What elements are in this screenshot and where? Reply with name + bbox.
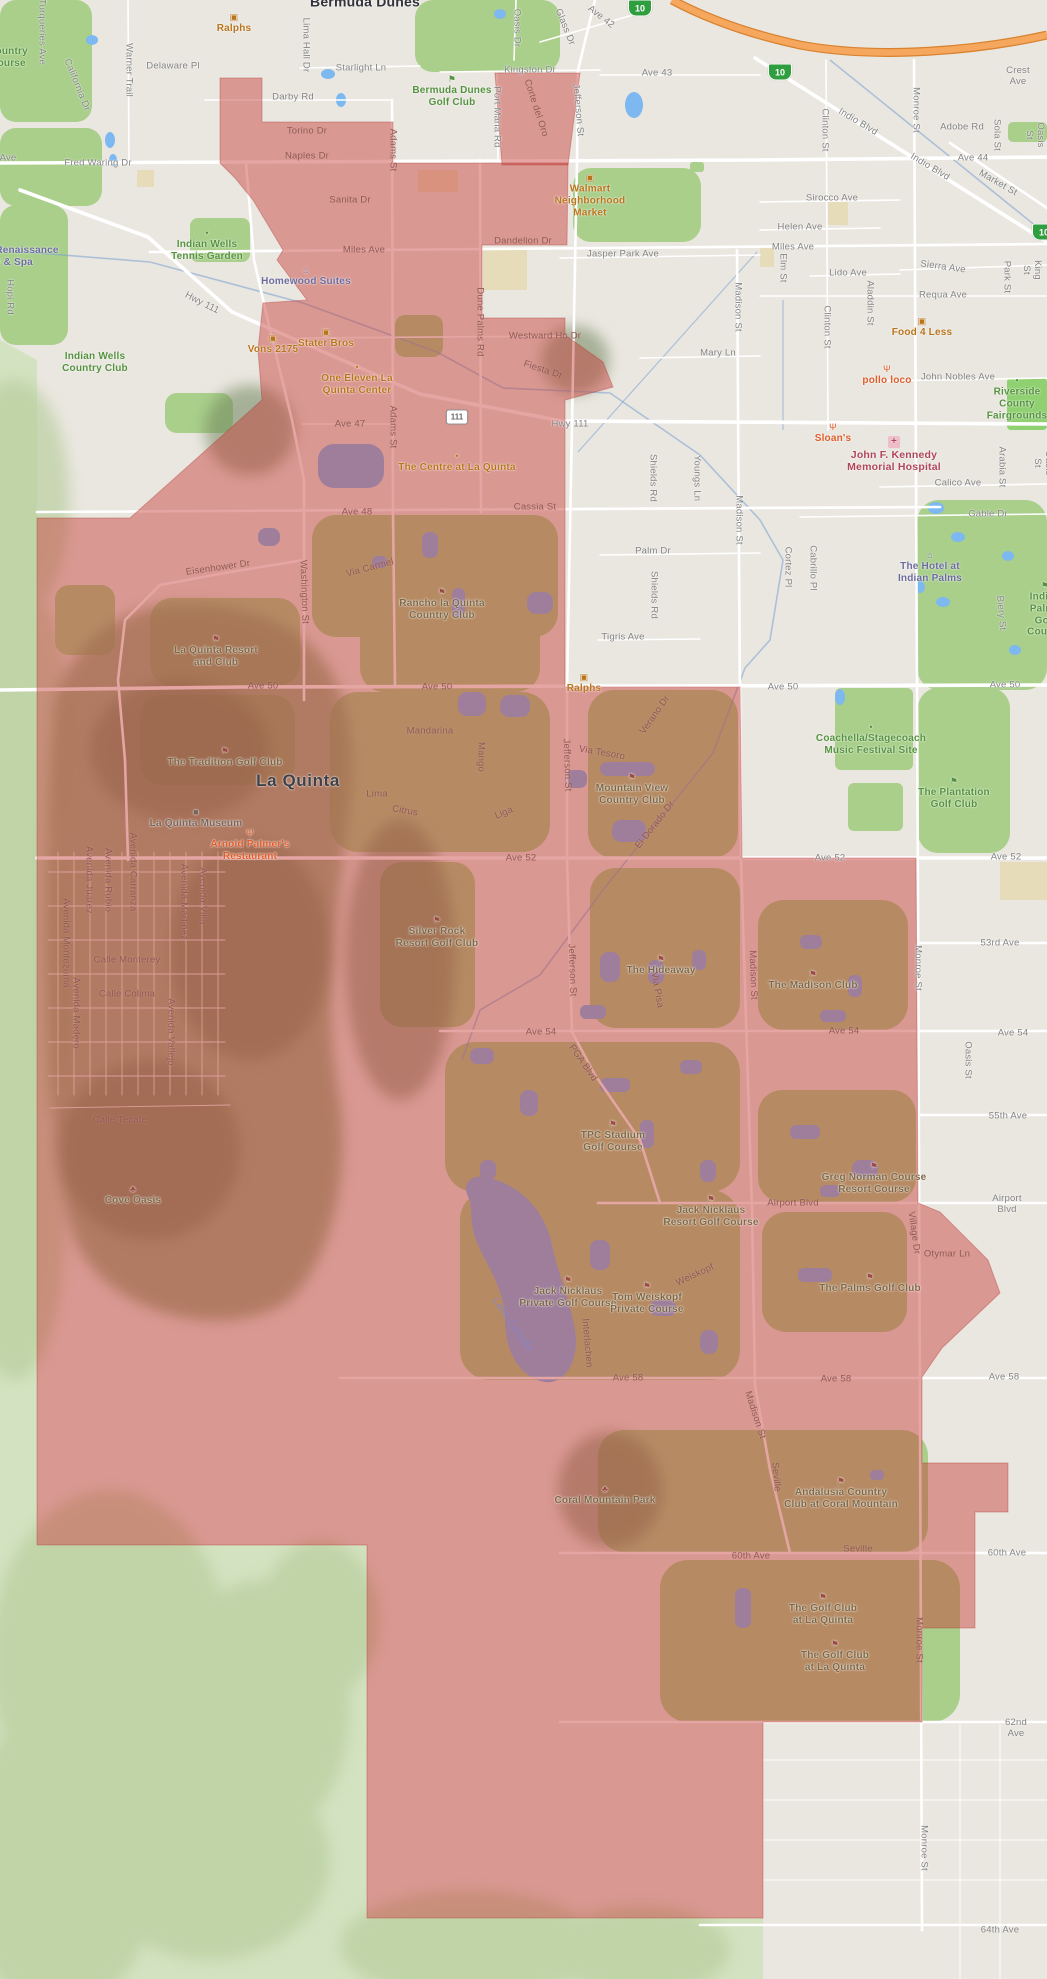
map-label: Miles Ave (772, 241, 814, 252)
map-label: Village Dr (905, 1211, 922, 1255)
map-label: Ave 44 (958, 152, 989, 163)
map-label: Calico Ave (935, 477, 982, 488)
map-label[interactable]: ⚑The Golf Club at La Quinta (801, 1640, 869, 1674)
map-label: 55th Ave (989, 1110, 1027, 1121)
map-label[interactable]: Ψpollo loco (862, 365, 911, 387)
map-label: Ave 52 (506, 852, 537, 863)
map-label: Mango (475, 742, 486, 772)
map-label: Avenida Madero (70, 977, 81, 1049)
map-label: Indian Wells Country Club (62, 351, 128, 375)
golf-flag-icon: ⚑ (663, 1195, 758, 1204)
map-label: Cortez Pl (782, 547, 793, 588)
map-label[interactable]: ▣Food 4 Less (892, 317, 953, 339)
map-label: Ave 50 (768, 681, 799, 692)
map-label[interactable]: ▣Stater Bros (298, 328, 354, 350)
map-label: Shields Rd (647, 454, 658, 502)
map-label[interactable]: ⚑The Palms Golf Club (819, 1273, 921, 1295)
map-label: Ave 43 (642, 67, 673, 78)
map-label: Ave 54 (526, 1026, 557, 1037)
map-label[interactable]: ⚑Greg Norman Course Resort Course (822, 1162, 927, 1196)
shopping-cart-icon: ▣ (298, 328, 354, 337)
map-label: Sola St (991, 119, 1002, 151)
map-label: Bermuda Dunes (310, 0, 420, 10)
map-label: Palm Dr (635, 545, 671, 556)
map-label: Monroe St (913, 1617, 924, 1663)
map-label: Hwy 111 (183, 290, 221, 317)
map-label: Fiesta Dr (522, 358, 564, 381)
map-label: Hopi Rd (4, 279, 15, 315)
map-label: Naples Dr (285, 150, 329, 161)
map-label: Ave 52 (991, 851, 1022, 862)
interstate-10-shield: 10 (1032, 224, 1047, 241)
map-label: Ave 50 (248, 680, 279, 691)
map-label: Calle Colima (99, 988, 155, 999)
map-label: Ave 48 (342, 506, 373, 517)
map-label: Monroe St (910, 87, 921, 133)
map-label: Oasis St (1032, 450, 1047, 475)
map-label: Eisenhower Dr (185, 558, 251, 578)
map-label[interactable]: +John F. Kennedy Memorial Hospital (847, 436, 941, 474)
park-tree-icon: ♣ (554, 1485, 655, 1494)
map-label: Jefferson St (570, 83, 586, 137)
map-label: Monroe St (918, 1825, 929, 1871)
map-label: Ave (0, 152, 16, 163)
map-label: Lima Hall Dr (300, 18, 311, 73)
golf-flag-icon: ⚑ (1027, 581, 1047, 590)
map-label: Ave 58 (613, 1372, 644, 1383)
map-label: Avenida Carranza (127, 832, 138, 911)
map-label: Monroe St (912, 945, 923, 991)
map-label[interactable]: •Coachella/Stagecoach Music Festival Sit… (816, 723, 926, 757)
park-tree-icon: ♣ (105, 1185, 161, 1194)
map-label: Helen Ave (778, 221, 823, 232)
map-label: 60th Ave (732, 1550, 770, 1561)
interstate-10-shield: 10 (768, 64, 792, 81)
map-label: Calle Monterey (94, 954, 161, 965)
map-label[interactable]: ⚑The Tradition Golf Club (167, 747, 282, 769)
map-label: Madison St (742, 1390, 768, 1441)
map-label: Ave 54 (998, 1027, 1029, 1038)
map-label: Dune Palms Rd (474, 287, 485, 356)
map-label[interactable]: ♣Cove Oasis (105, 1185, 161, 1207)
map-label: PGA Blvd (566, 1042, 599, 1083)
golf-flag-icon: ⚑ (581, 1120, 645, 1129)
map-label: Jasper Park Ave (587, 248, 659, 259)
map-label: Hwy 111 (552, 418, 589, 429)
map-label: 53rd Ave (981, 937, 1020, 948)
map-label: Kingston Dr (504, 64, 556, 75)
map-label[interactable]: ♣Coral Mountain Park (554, 1485, 655, 1507)
map-label: Avenida Juarez (83, 846, 94, 914)
map-label: Avenida Villa (197, 867, 208, 924)
map-label[interactable]: ΨArnold Palmer's Restaurant (210, 829, 289, 863)
map-label: California Dr (61, 57, 92, 113)
map-label: Airport Blvd (767, 1197, 819, 1208)
golf-flag-icon: ⚑ (626, 955, 695, 964)
map-label: Avenida Rubio (102, 848, 113, 912)
poi-dot-icon: • (171, 229, 243, 238)
golf-flag-icon: ⚑ (918, 777, 990, 786)
golf-flag-icon: ⚑ (801, 1640, 869, 1649)
map-label[interactable]: ⚑Jack Nicklaus Private Golf Course (519, 1276, 616, 1310)
map-label: Torino Dr (287, 125, 327, 136)
map-label: Warner Trail (123, 43, 134, 97)
poi-dot-icon: • (987, 376, 1047, 385)
map-label: Madison St (733, 495, 744, 545)
map-label: Adams St (387, 129, 398, 172)
map-canvas[interactable]: Bermuda Dunes▣RalphsLima Hall DrOasis Dr… (0, 0, 1047, 1979)
map-label: Aladdin St (864, 280, 875, 325)
map-label: Park St (1001, 261, 1012, 294)
highway-111-shield: 111 (446, 410, 468, 425)
golf-flag-icon: ⚑ (822, 1162, 927, 1171)
map-label: Corte del Oro (521, 78, 550, 138)
map-label[interactable]: •One Eleven La Quinta Center (321, 363, 393, 397)
map-label: Lima (366, 788, 387, 799)
map-label: Requa Ave (919, 289, 967, 300)
map-label[interactable]: ⚑Andalusia Country Club at Coral Mountai… (784, 1477, 898, 1511)
map-label[interactable]: ⌂The Hotel at Indian Palms (898, 551, 962, 585)
map-label: Seville (769, 1462, 783, 1492)
restaurant-icon: Ψ (210, 829, 289, 838)
map-label: Cassia St (514, 501, 556, 512)
restaurant-icon: Ψ (862, 365, 911, 374)
map-label: Ave 58 (821, 1373, 852, 1384)
map-label: Turqueries Ave (36, 0, 47, 65)
poi-dot-icon: • (816, 723, 926, 732)
golf-flag-icon: ⚑ (396, 916, 479, 925)
map-label: Jefferson St (565, 943, 578, 996)
map-label: Ave 47 (335, 418, 366, 429)
map-label: 62nd Ave (1001, 1717, 1032, 1739)
map-label: La Quinta (256, 771, 340, 791)
map-label: Crest Ave (1004, 65, 1033, 87)
map-label: Elm St (777, 253, 788, 282)
golf-flag-icon: ⚑ (399, 588, 484, 597)
map-label: Cabrillo Pl (807, 545, 818, 591)
map-label: Mandarina (407, 725, 454, 736)
shopping-cart-icon: ▣ (248, 334, 299, 343)
map-label[interactable]: ΨSloan's (815, 423, 852, 445)
map-label: Verano Dr (638, 694, 673, 737)
map-label: Madison St (747, 950, 760, 1000)
museum-icon: ■ (150, 808, 243, 817)
map-label: Ave 58 (989, 1371, 1020, 1382)
map-label[interactable]: ⚑Jack Nicklaus Resort Golf Course (663, 1195, 758, 1229)
map-label[interactable]: ⚑Indian Palms Golf Course (1027, 581, 1047, 638)
map-label: 64th Ave (981, 1924, 1019, 1935)
map-label: Starlight Ln (336, 62, 386, 73)
map-label: Westward Ho Dr (509, 330, 581, 341)
shopping-cart-icon: ▣ (555, 173, 626, 182)
map-label[interactable]: ⚑Silver Rock Resort Golf Club (396, 916, 479, 950)
lodging-icon: ⌂ (261, 266, 351, 275)
golf-flag-icon: ⚑ (819, 1273, 921, 1282)
map-label: Biery St (994, 595, 1008, 631)
map-label[interactable]: ⚑TPC Stadium Golf Course (581, 1120, 645, 1154)
map-label: Avenida Montezuma (60, 898, 71, 988)
map-label: 60th Ave (988, 1547, 1026, 1558)
map-label: Citrus (391, 803, 419, 819)
map-label: Oasis Dr (511, 9, 522, 48)
map-label: Otymar Ln (924, 1248, 970, 1259)
map-label[interactable]: ▣Vons 2175 (248, 334, 299, 356)
map-label: Port Maria Rd (491, 86, 502, 147)
map-label: Arabia St (996, 447, 1007, 488)
map-label[interactable]: •The Centre at La Quinta (398, 452, 515, 474)
map-label[interactable]: ⚑Mountain View Country Club (596, 773, 668, 807)
map-label: Glass Dr (553, 7, 578, 47)
map-label: Ave 52 (815, 852, 846, 863)
map-label[interactable]: ▣Ralphs (567, 673, 602, 695)
map-label[interactable]: ■La Quinta Museum (150, 808, 243, 830)
map-label: Indio Blvd (836, 106, 879, 138)
map-label[interactable]: ⚑The Golf Club at La Quinta (789, 1593, 857, 1627)
map-label: Avenida Martinez (178, 864, 189, 940)
golf-flag-icon: ⚑ (789, 1593, 857, 1602)
map-label[interactable]: ⚑Bermuda Dunes Golf Club (412, 75, 491, 109)
map-label: Jefferson St (560, 738, 573, 791)
map-label: John Nobles Ave (921, 371, 995, 382)
map-label: Market St (977, 168, 1019, 199)
map-label: Gable Dr (968, 508, 1008, 519)
map-label[interactable]: ⌂Homewood Suites (261, 266, 351, 288)
map-label: Calle Tecate (93, 1114, 148, 1125)
map-label: Clinton St (821, 305, 832, 348)
map-label: Seville (843, 1543, 872, 1554)
shopping-cart-icon: ▣ (567, 673, 602, 682)
hospital-cross-icon: + (888, 436, 900, 448)
map-label: Sierra Ave (920, 258, 967, 275)
map-label[interactable]: ⚑The Plantation Golf Club (918, 777, 990, 811)
map-label[interactable]: ⚑The Hideaway (626, 955, 695, 977)
map-label: Washington St (297, 560, 310, 624)
map-label: Lido Ave (829, 267, 867, 278)
map-label[interactable]: ⚑La Quinta Resort and Club (174, 635, 258, 669)
map-label: Renaissance (0, 245, 59, 257)
map-label[interactable]: ⚑The Madison Club (768, 970, 857, 992)
map-label: Sirocco Ave (806, 192, 858, 203)
map-label: Oasis St (962, 1041, 973, 1079)
map-label[interactable]: ▣Ralphs (217, 13, 252, 35)
map-label: King St (1021, 260, 1043, 280)
golf-flag-icon: ⚑ (412, 75, 491, 84)
map-label: Dandelion Dr (494, 235, 552, 246)
shopping-cart-icon: ▣ (217, 13, 252, 22)
map-label: Ave 54 (829, 1025, 860, 1036)
lodging-icon: ⌂ (898, 551, 962, 560)
map-label: Liga (493, 804, 515, 821)
interstate-10-shield: 10 (628, 0, 652, 17)
map-label: Delaware Pl (146, 60, 199, 71)
golf-flag-icon: ⚑ (596, 773, 668, 782)
map-label[interactable]: ▣Walmart Neighborhood Market (555, 173, 626, 218)
poi-dot-icon: • (398, 452, 515, 461)
restaurant-icon: Ψ (815, 423, 852, 432)
map-label: Oasis St (1024, 122, 1046, 147)
map-label: Airport Blvd (987, 1193, 1027, 1215)
golf-flag-icon: ⚑ (167, 747, 282, 756)
map-label: Clinton St (819, 108, 830, 151)
map-label: Youngs Ln (691, 455, 702, 501)
poi-dot-icon: • (321, 363, 393, 372)
golf-flag-icon: ⚑ (768, 970, 857, 979)
map-label: Madison St (732, 282, 743, 332)
map-label: Interlachen (579, 1318, 594, 1368)
map-label: Country Course (0, 46, 28, 70)
golf-flag-icon: ⚑ (784, 1477, 898, 1486)
map-label: Mary Ln (700, 347, 736, 358)
map-label: Ave 50 (422, 681, 453, 692)
map-label: Tigris Ave (601, 631, 644, 642)
map-label: Darby Rd (272, 91, 314, 102)
map-label: Miles Ave (343, 244, 385, 255)
map-label[interactable]: •Indian Wells Tennis Garden (171, 229, 243, 263)
map-label: Avenida Vallejo (165, 998, 176, 1066)
shopping-cart-icon: ▣ (892, 317, 953, 326)
map-label: Ave 50 (990, 679, 1021, 690)
map-label[interactable]: ⚑Rancho la Quinta Country Club (399, 588, 484, 622)
map-label[interactable]: •Riverside County Fairgrounds (987, 376, 1047, 421)
map-label: Via Carmel (345, 556, 395, 579)
map-label: Adams St (387, 406, 398, 449)
map-label: Sanita Dr (329, 194, 370, 205)
golf-flag-icon: ⚑ (610, 1282, 683, 1291)
map-label: Via Tesoro (578, 743, 626, 762)
map-labels: Bermuda Dunes▣RalphsLima Hall DrOasis Dr… (0, 0, 1047, 1979)
map-label: Ave 42 (585, 3, 616, 31)
golf-flag-icon: ⚑ (174, 635, 258, 644)
map-label: Shields Rd (648, 571, 659, 619)
map-label: t & Spa (0, 257, 33, 269)
map-label: Indio Blvd (908, 151, 951, 183)
map-label: Adobe Rd (940, 121, 984, 132)
map-label: Fred Waring Dr (64, 157, 131, 168)
golf-flag-icon: ⚑ (519, 1276, 616, 1285)
map-label[interactable]: ⚑Tom Weiskopf Private Course (610, 1282, 683, 1316)
